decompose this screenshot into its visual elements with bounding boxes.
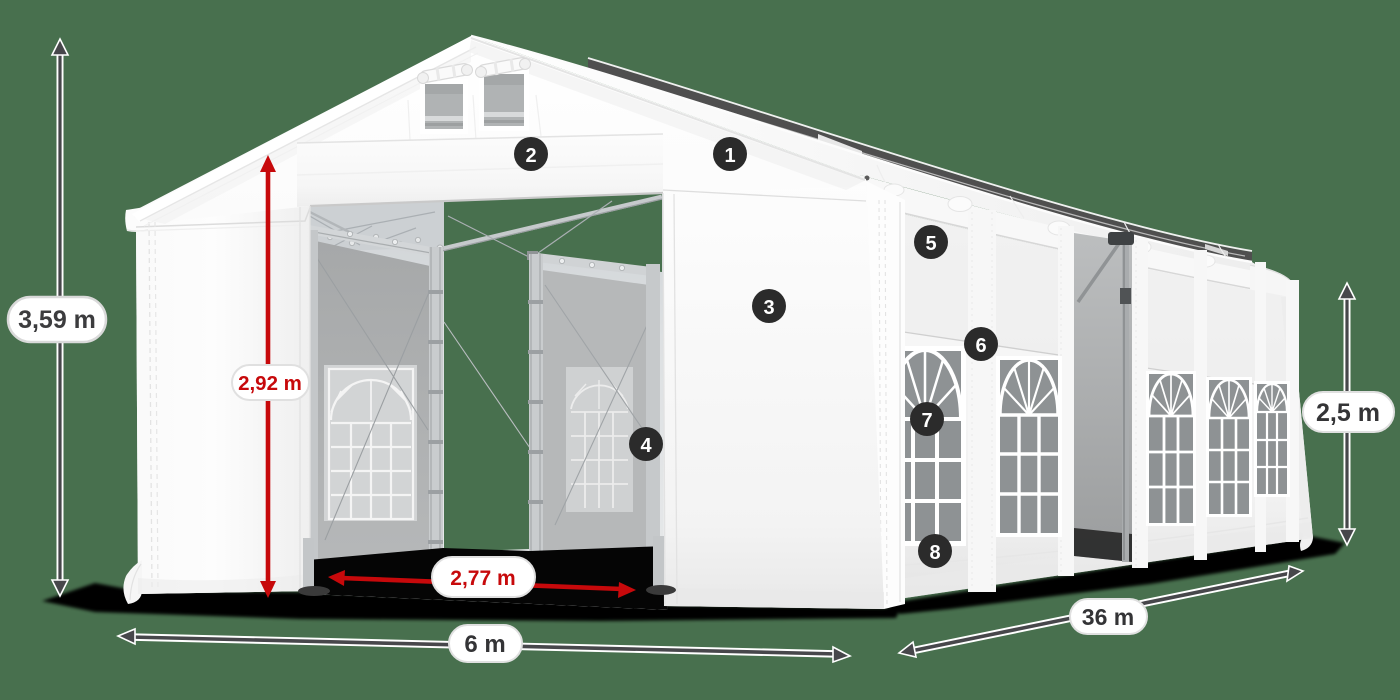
svg-text:2,5 m: 2,5 m <box>1316 399 1380 427</box>
svg-text:5: 5 <box>925 233 936 255</box>
svg-text:8: 8 <box>929 542 940 564</box>
svg-text:4: 4 <box>640 435 652 457</box>
svg-text:36 m: 36 m <box>1082 604 1134 630</box>
svg-text:3: 3 <box>763 297 774 319</box>
svg-text:3,59 m: 3,59 m <box>18 306 96 334</box>
svg-text:2,77 m: 2,77 m <box>450 567 515 590</box>
svg-text:2: 2 <box>525 145 536 167</box>
svg-text:7: 7 <box>921 410 932 432</box>
svg-text:2,92 m: 2,92 m <box>238 372 302 395</box>
svg-text:6: 6 <box>975 335 986 357</box>
svg-text:1: 1 <box>724 145 735 167</box>
svg-text:6 m: 6 m <box>464 631 505 658</box>
